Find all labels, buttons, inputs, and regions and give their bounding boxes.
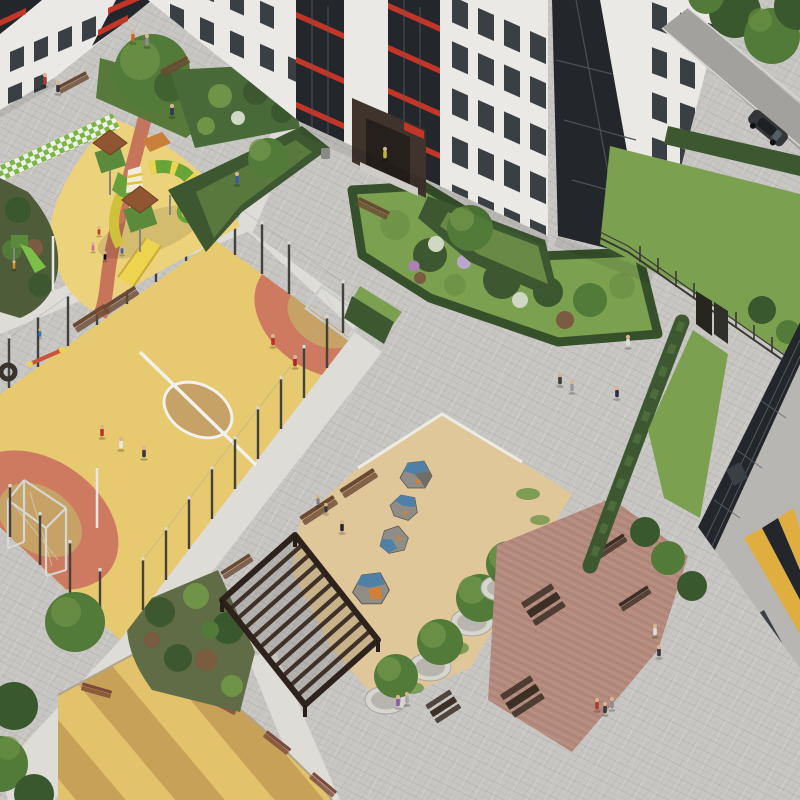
trash-bin: [321, 148, 330, 159]
tree: [748, 296, 776, 324]
courtyard-render: [0, 0, 800, 800]
white-flower-shrub: [428, 236, 444, 252]
screenshot-root: [0, 0, 800, 800]
